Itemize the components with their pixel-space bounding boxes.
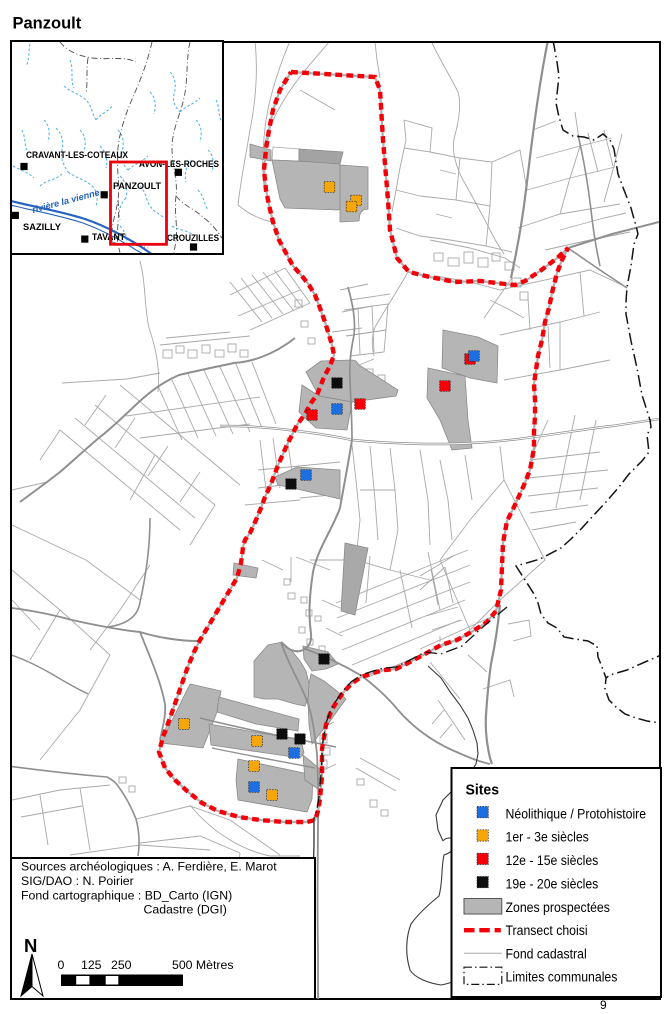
svg-text:SIG/DAO : N. Poirier: SIG/DAO : N. Poirier xyxy=(21,874,134,888)
svg-text:PANZOULT: PANZOULT xyxy=(113,181,162,191)
svg-text:Fond cadastral: Fond cadastral xyxy=(506,946,587,962)
svg-text:Néolithique / Protohistoire: Néolithique / Protohistoire xyxy=(506,806,647,822)
svg-text:125: 125 xyxy=(81,958,102,972)
svg-text:19e - 20e siècles: 19e - 20e siècles xyxy=(506,876,599,892)
svg-text:TAVANT: TAVANT xyxy=(92,232,126,242)
svg-text:Cadastre (DGI): Cadastre (DGI) xyxy=(144,903,227,917)
svg-text:Zones prospectées: Zones prospectées xyxy=(506,900,610,916)
svg-text:9: 9 xyxy=(600,998,607,1009)
svg-text:250: 250 xyxy=(111,958,132,972)
svg-text:AVON-LES-ROCHES: AVON-LES-ROCHES xyxy=(139,159,219,169)
svg-text:Fond cartographique : BD_Carto: Fond cartographique : BD_Carto (IGN) xyxy=(21,888,232,902)
svg-text:N: N xyxy=(24,935,37,956)
svg-text:Sources archéologiques : A. Fe: Sources archéologiques : A. Ferdière, E.… xyxy=(21,860,277,874)
svg-text:12e - 15e siècles: 12e - 15e siècles xyxy=(506,853,599,869)
svg-text:Limites communales: Limites communales xyxy=(506,970,618,986)
svg-text:0: 0 xyxy=(58,958,65,972)
svg-text:SAZILLY: SAZILLY xyxy=(23,222,61,232)
svg-text:Transect choisi: Transect choisi xyxy=(506,923,588,939)
svg-text:500 Mètres: 500 Mètres xyxy=(172,958,234,972)
svg-text:Panzoult: Panzoult xyxy=(13,14,82,32)
svg-text:Sites: Sites xyxy=(466,783,500,799)
svg-text:CRAVANT-LES-COTEAUX: CRAVANT-LES-COTEAUX xyxy=(26,150,128,160)
svg-text:1er - 3e siècles: 1er - 3e siècles xyxy=(506,830,589,846)
svg-text:CROUZILLES: CROUZILLES xyxy=(167,233,219,243)
